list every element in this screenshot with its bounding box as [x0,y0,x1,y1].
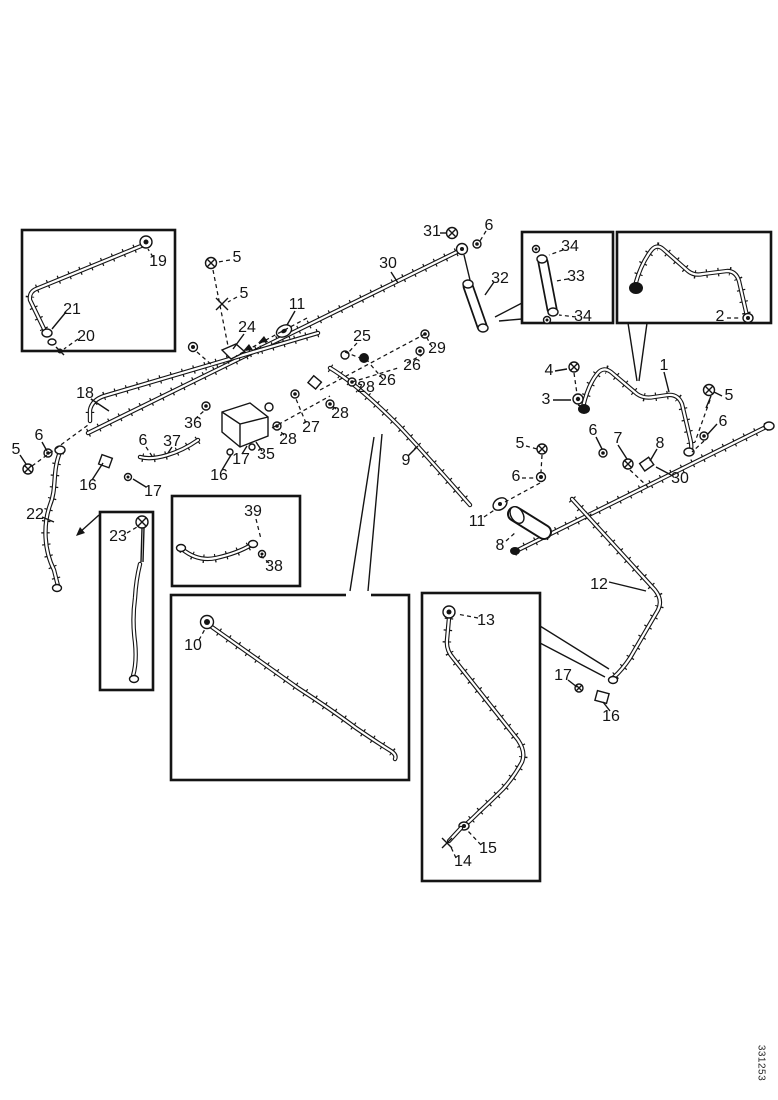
callout-16-6: 16 [79,478,97,494]
callout-18-3: 18 [76,386,94,402]
callout-10-34: 10 [184,638,202,654]
callout-28-25: 28 [279,432,297,448]
callout-4-40: 4 [545,363,554,379]
callout-39-32: 39 [244,504,262,520]
callout-5-10: 5 [233,250,242,266]
callout-8-37: 8 [496,538,505,554]
callout-14-58: 14 [454,854,472,870]
callout-33-45: 33 [567,269,585,285]
callout-1-42: 1 [660,358,669,374]
callout-30-14: 30 [379,256,397,272]
callout-36-26: 36 [184,416,202,432]
callout-16-31: 16 [210,468,228,484]
callout-25-18: 25 [353,329,371,345]
callout-20-2: 20 [77,329,95,345]
callout-26-20: 26 [403,358,421,374]
callout-6-4: 6 [35,428,44,444]
callout-6-48: 6 [719,414,728,430]
callout-17-55: 17 [554,668,572,684]
callout-32-17: 32 [491,271,509,287]
callout-17-29: 17 [232,452,250,468]
callout-3-41: 3 [542,392,551,408]
callout-15-57: 15 [479,841,497,857]
callout-30-52: 30 [671,471,689,487]
callout-19-0: 19 [149,254,167,270]
callout-38-33: 38 [265,559,283,575]
callout-17-7: 17 [144,484,162,500]
callout-34-44: 34 [561,239,579,255]
callout-12-53: 12 [590,577,608,593]
callout-6-38: 6 [512,469,521,485]
callout-5-11: 5 [240,286,249,302]
callout-7-49: 7 [614,431,623,447]
callout-28-22: 28 [357,380,375,396]
parts-figure-page: 1921201865161722235524113031632252926262… [0,0,778,1100]
callout-34-46: 34 [574,309,592,325]
callout-35-30: 35 [257,447,275,463]
callout-37-28: 37 [163,434,181,450]
callout-11-36: 11 [469,514,486,530]
callout-16-56: 16 [602,709,620,725]
callout-5-5: 5 [12,442,21,458]
callout-27-24: 27 [302,420,320,436]
callout-layer: 1921201865161722235524113031632252926262… [0,0,778,1100]
callout-6-16: 6 [485,218,494,234]
callout-26-21: 26 [378,373,396,389]
callout-31-15: 31 [423,224,441,240]
callout-5-47: 5 [725,388,734,404]
callout-23-9: 23 [109,529,127,545]
figure-number-watermark: 331253 [756,1045,767,1081]
callout-5-39: 5 [516,436,525,452]
callout-29-19: 29 [428,341,446,357]
callout-11-13: 11 [289,297,306,313]
callout-2-43: 2 [716,309,725,325]
callout-6-27: 6 [139,433,148,449]
callout-24-12: 24 [238,320,256,336]
callout-6-51: 6 [589,423,598,439]
callout-22-8: 22 [26,507,44,523]
callout-9-35: 9 [402,453,411,469]
callout-21-1: 21 [63,302,81,318]
callout-13-54: 13 [477,613,495,629]
callout-8-50: 8 [656,436,665,452]
callout-28-23: 28 [331,406,349,422]
